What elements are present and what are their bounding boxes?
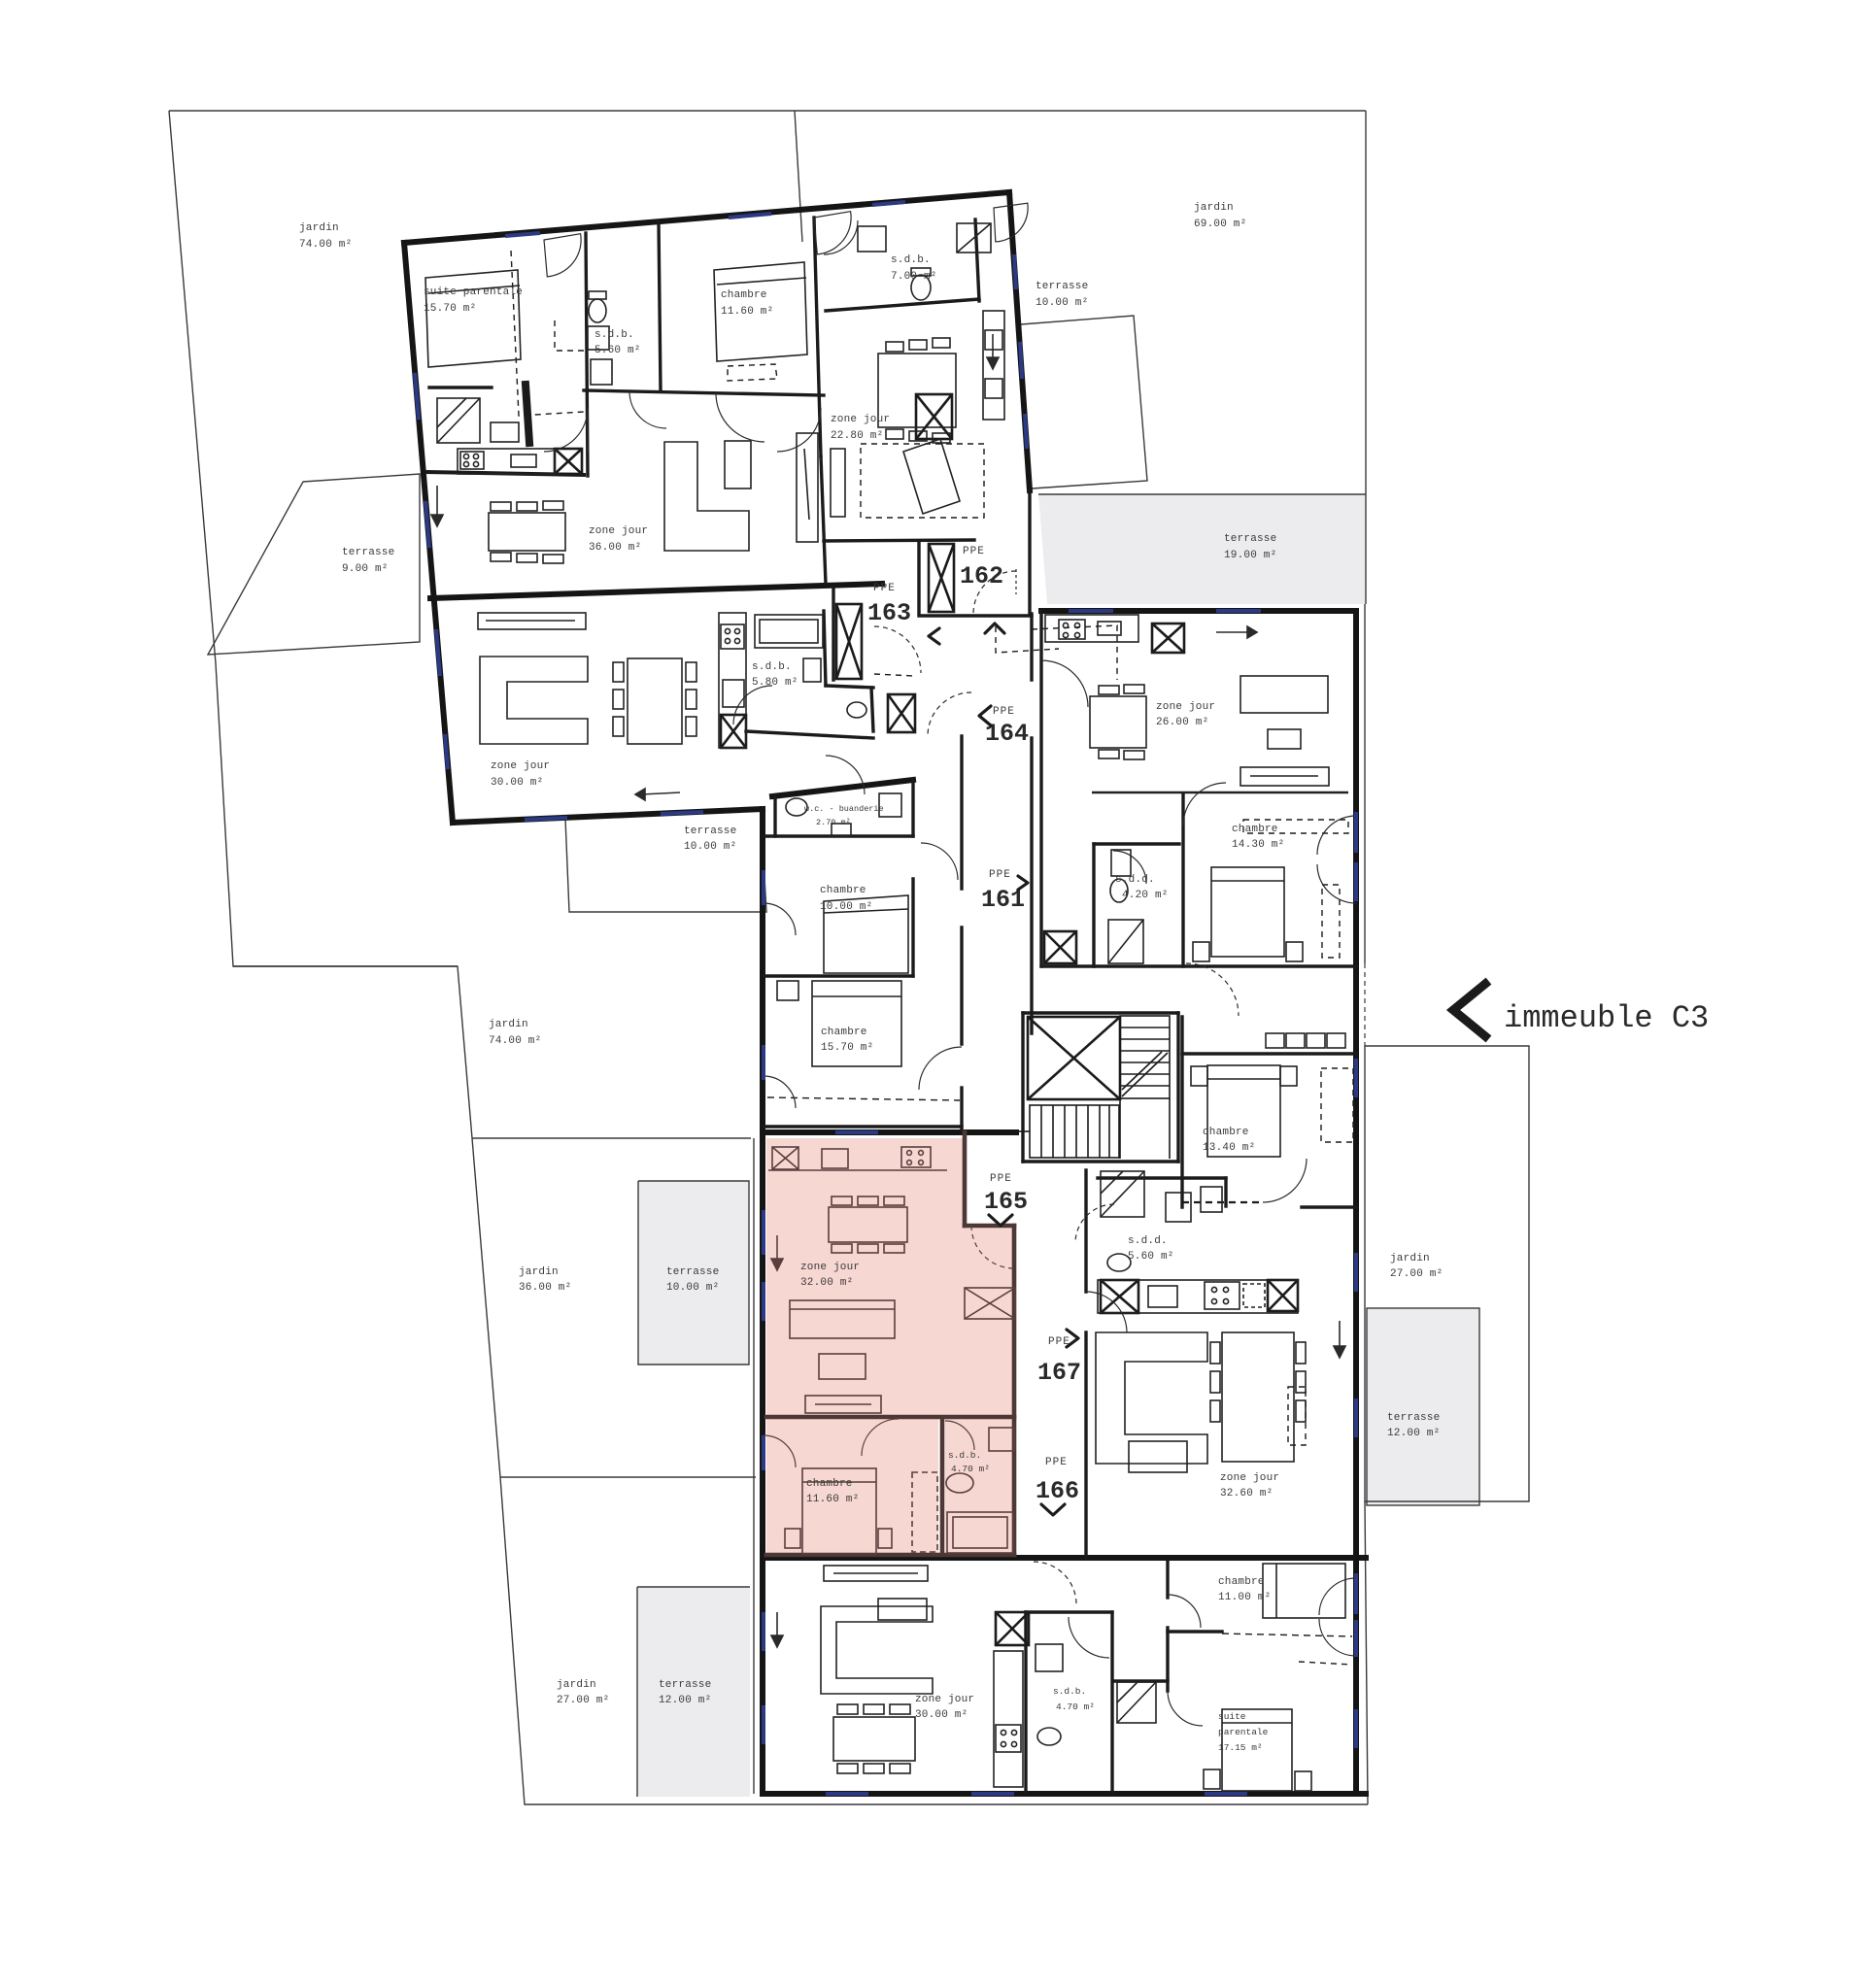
svg-text:jardin: jardin — [1390, 1253, 1430, 1264]
svg-text:zone jour: zone jour — [831, 414, 890, 425]
svg-text:26.00 m²: 26.00 m² — [1156, 717, 1208, 728]
svg-text:immeuble C3: immeuble C3 — [1504, 1000, 1709, 1036]
svg-text:32.60 m²: 32.60 m² — [1220, 1488, 1273, 1499]
svg-text:10.00 m²: 10.00 m² — [820, 901, 872, 913]
svg-text:10.00 m²: 10.00 m² — [666, 1282, 719, 1294]
svg-text:10.00 m²: 10.00 m² — [1036, 297, 1088, 309]
svg-text:15.70 m²: 15.70 m² — [821, 1042, 873, 1054]
svg-text:36.00 m²: 36.00 m² — [589, 542, 641, 554]
svg-text:PPE: PPE — [963, 546, 985, 557]
svg-text:167: 167 — [1037, 1359, 1081, 1387]
svg-text:jardin: jardin — [1194, 202, 1234, 214]
svg-text:10.00 m²: 10.00 m² — [684, 841, 736, 853]
svg-text:chambre: chambre — [1218, 1576, 1265, 1588]
svg-text:zone jour: zone jour — [1156, 701, 1215, 713]
svg-text:PPE: PPE — [993, 706, 1015, 718]
svg-text:11.60 m²: 11.60 m² — [806, 1494, 859, 1505]
svg-text:27.00 m²: 27.00 m² — [1390, 1268, 1443, 1280]
svg-text:165: 165 — [984, 1188, 1028, 1216]
svg-text:163: 163 — [867, 599, 911, 627]
svg-text:jardin: jardin — [299, 222, 339, 234]
svg-text:162: 162 — [960, 562, 1003, 590]
svg-text:4.70 m²: 4.70 m² — [1056, 1702, 1095, 1712]
svg-text:s.d.b.: s.d.b. — [752, 661, 792, 673]
svg-text:s.d.b.: s.d.b. — [948, 1450, 981, 1461]
svg-text:9.00 m²: 9.00 m² — [342, 563, 389, 575]
svg-text:14.30 m²: 14.30 m² — [1232, 839, 1284, 851]
svg-text:164: 164 — [985, 720, 1029, 748]
svg-text:PPE: PPE — [989, 869, 1011, 881]
svg-text:suite: suite — [1218, 1711, 1246, 1722]
svg-text:166: 166 — [1036, 1477, 1079, 1505]
svg-text:12.00 m²: 12.00 m² — [1387, 1428, 1440, 1439]
svg-text:jardin: jardin — [557, 1679, 596, 1691]
svg-text:s.d.d.: s.d.d. — [1128, 1235, 1168, 1247]
svg-text:zone jour: zone jour — [491, 760, 550, 772]
svg-text:jardin: jardin — [489, 1019, 528, 1030]
svg-text:7.00 m²: 7.00 m² — [891, 271, 937, 283]
svg-text:chambre: chambre — [806, 1478, 853, 1490]
svg-text:30.00 m²: 30.00 m² — [915, 1709, 968, 1721]
svg-text:zone jour: zone jour — [915, 1694, 974, 1705]
svg-text:jardin: jardin — [519, 1266, 559, 1278]
svg-text:4.20 m²: 4.20 m² — [1122, 890, 1169, 901]
svg-text:chambre: chambre — [821, 1027, 867, 1038]
svg-text:13.40 m²: 13.40 m² — [1203, 1142, 1255, 1154]
svg-text:5.60 m²: 5.60 m² — [1128, 1251, 1174, 1263]
svg-text:s.d.b.: s.d.b. — [594, 329, 634, 341]
svg-text:PPE: PPE — [873, 583, 896, 594]
svg-text:69.00 m²: 69.00 m² — [1194, 219, 1246, 230]
svg-text:terrasse: terrasse — [1224, 533, 1276, 545]
svg-text:suite parentale: suite parentale — [424, 286, 523, 298]
svg-text:terrasse: terrasse — [666, 1266, 719, 1278]
svg-text:terrasse: terrasse — [1036, 281, 1088, 292]
svg-text:parentale: parentale — [1218, 1727, 1269, 1737]
svg-text:terrasse: terrasse — [659, 1679, 711, 1691]
svg-text:74.00 m²: 74.00 m² — [299, 239, 352, 251]
svg-text:zone jour: zone jour — [589, 525, 648, 537]
svg-text:zone jour: zone jour — [1220, 1472, 1279, 1484]
svg-text:s.d.b.: s.d.b. — [891, 254, 931, 266]
svg-text:terrasse: terrasse — [1387, 1412, 1440, 1424]
svg-text:PPE: PPE — [1045, 1457, 1068, 1468]
svg-text:4.70 m²: 4.70 m² — [951, 1464, 990, 1474]
svg-text:w.c. - buanderie: w.c. - buanderie — [804, 804, 884, 814]
svg-text:19.00 m²: 19.00 m² — [1224, 550, 1276, 561]
svg-text:chambre: chambre — [721, 289, 767, 301]
svg-text:chambre: chambre — [1203, 1127, 1249, 1138]
svg-text:32.00 m²: 32.00 m² — [800, 1277, 853, 1289]
svg-text:74.00 m²: 74.00 m² — [489, 1035, 541, 1047]
svg-text:30.00 m²: 30.00 m² — [491, 777, 543, 789]
svg-text:chambre: chambre — [1232, 824, 1278, 835]
svg-text:terrasse: terrasse — [684, 826, 736, 837]
svg-text:36.00 m²: 36.00 m² — [519, 1282, 571, 1294]
svg-text:11.60 m²: 11.60 m² — [721, 306, 773, 318]
svg-text:s.d.d.: s.d.d. — [1115, 874, 1155, 886]
svg-text:5.80 m²: 5.80 m² — [752, 677, 798, 689]
svg-text:PPE: PPE — [990, 1173, 1012, 1185]
svg-text:11.00 m²: 11.00 m² — [1218, 1592, 1271, 1603]
svg-text:27.00 m²: 27.00 m² — [557, 1695, 609, 1706]
svg-text:22.80 m²: 22.80 m² — [831, 430, 883, 442]
svg-text:s.d.b.: s.d.b. — [1053, 1686, 1086, 1697]
svg-text:5.60 m²: 5.60 m² — [594, 345, 641, 356]
svg-text:15.70 m²: 15.70 m² — [424, 303, 476, 315]
svg-text:zone jour: zone jour — [800, 1262, 860, 1273]
svg-text:chambre: chambre — [820, 885, 866, 896]
svg-text:terrasse: terrasse — [342, 547, 394, 558]
svg-text:12.00 m²: 12.00 m² — [659, 1695, 711, 1706]
svg-text:2.70 m²: 2.70 m² — [816, 818, 851, 827]
svg-text:17.15 m²: 17.15 m² — [1218, 1742, 1263, 1753]
